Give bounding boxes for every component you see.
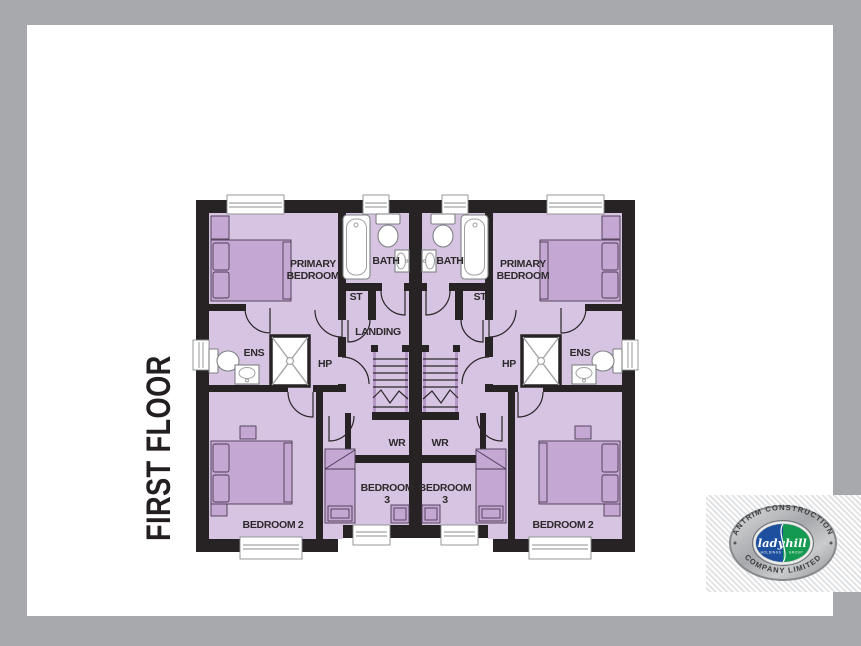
room-label-bath: BATH bbox=[436, 255, 463, 267]
badge-dot-left bbox=[734, 542, 737, 545]
badge-dot-right bbox=[830, 542, 833, 545]
room-label-bedroom3: BEDROOM bbox=[361, 482, 414, 494]
room-label-bedroom2: BEDROOM 2 bbox=[243, 519, 304, 531]
company-logo: ANTRIM CONSTRUCTION COMPANY LIMITED lady… bbox=[706, 495, 861, 592]
room-label-ensuite: ENS bbox=[570, 347, 591, 359]
logo-sub-group: GROUP bbox=[789, 551, 803, 555]
room-label-bedroom3: 3 bbox=[442, 494, 448, 506]
logo-script-lady: lady bbox=[758, 536, 786, 550]
room-label-landing: LANDING bbox=[355, 326, 401, 338]
room-label-primary-bedroom: BEDROOM bbox=[497, 270, 550, 282]
room-label-store: ST bbox=[474, 291, 488, 303]
room-label-primary-bedroom: PRIMARY bbox=[500, 258, 546, 270]
room-label-ensuite: ENS bbox=[244, 347, 265, 359]
room-label-bath: BATH bbox=[372, 255, 399, 267]
room-label-hotpress: HP bbox=[318, 358, 332, 370]
room-label-primary-bedroom: PRIMARY bbox=[290, 258, 336, 270]
room-label-primary-bedroom: BEDROOM bbox=[287, 270, 340, 282]
room-label-wardrobe: WR bbox=[389, 437, 407, 449]
room-label-bedroom3: 3 bbox=[384, 494, 390, 506]
logo-sub-holdings: HOLDINGS bbox=[761, 551, 782, 555]
room-label-hotpress: HP bbox=[502, 358, 516, 370]
room-label-bedroom2: BEDROOM 2 bbox=[533, 519, 594, 531]
room-label-store: ST bbox=[350, 291, 364, 303]
room-label-wardrobe: WR bbox=[432, 437, 450, 449]
room-label-bedroom3: BEDROOM bbox=[419, 482, 472, 494]
logo-script-hill: hill bbox=[785, 536, 807, 550]
